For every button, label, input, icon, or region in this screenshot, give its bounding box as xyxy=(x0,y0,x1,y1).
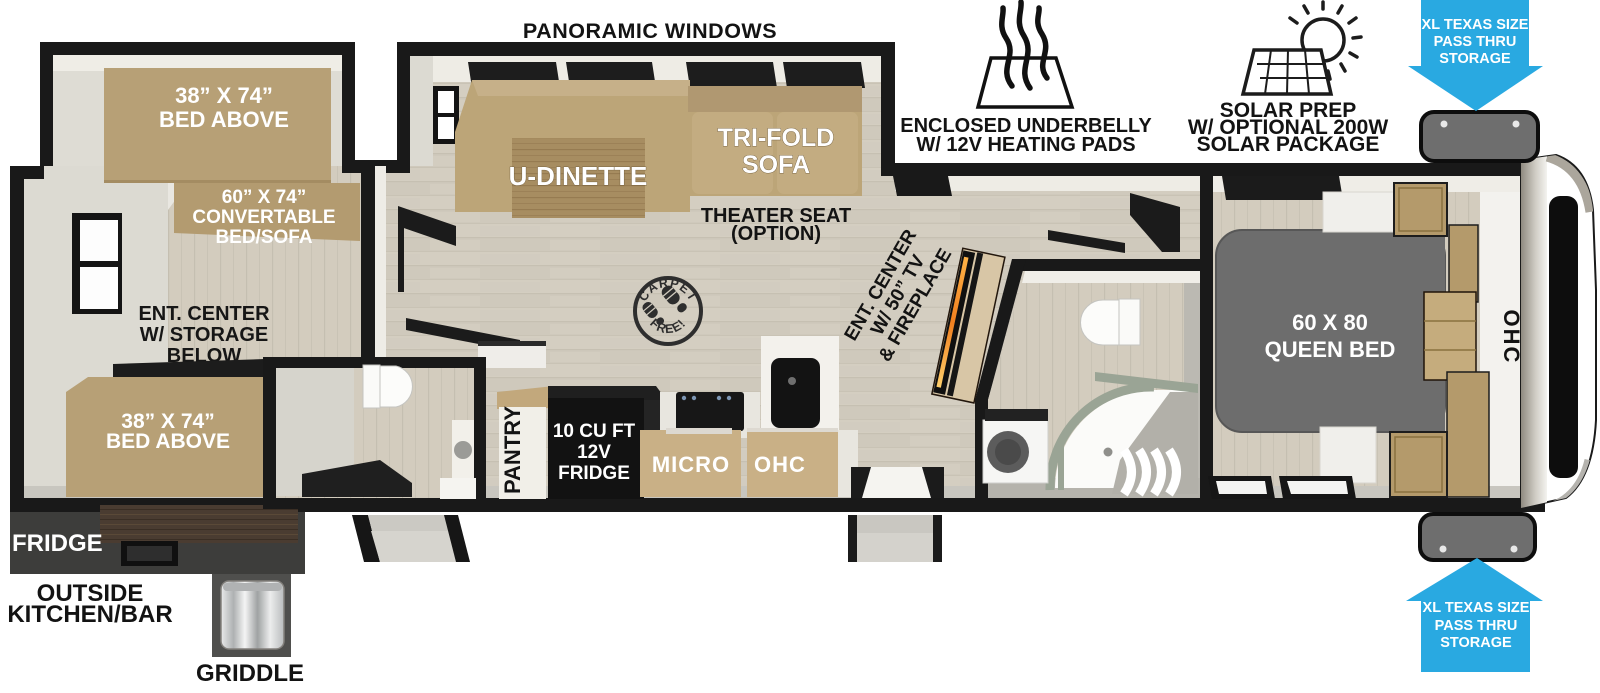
svg-text:60” X 74”: 60” X 74” xyxy=(222,187,307,208)
svg-text:KITCHEN/BAR: KITCHEN/BAR xyxy=(7,601,172,628)
svg-text:SOLAR PACKAGE: SOLAR PACKAGE xyxy=(1197,133,1380,156)
svg-text:W/ 12V HEATING PADS: W/ 12V HEATING PADS xyxy=(916,134,1135,156)
svg-text:SOFA: SOFA xyxy=(742,151,810,179)
svg-text:XL TEXAS SIZE: XL TEXAS SIZE xyxy=(1423,600,1530,616)
svg-text:QUEEN BED: QUEEN BED xyxy=(1265,337,1396,362)
svg-text:PANTRY: PANTRY xyxy=(500,406,525,494)
svg-text:12V: 12V xyxy=(577,442,611,463)
svg-text:OHC: OHC xyxy=(754,452,806,477)
svg-text:FRIDGE: FRIDGE xyxy=(558,463,630,484)
svg-text:10 CU FT: 10 CU FT xyxy=(553,421,636,442)
svg-text:MICRO: MICRO xyxy=(652,452,730,477)
svg-text:38” X 74”: 38” X 74” xyxy=(175,83,273,108)
svg-text:STORAGE: STORAGE xyxy=(1439,51,1511,67)
svg-text:CONVERTABLE: CONVERTABLE xyxy=(192,207,335,228)
svg-text:ENT. CENTER: ENT. CENTER xyxy=(138,303,270,325)
svg-text:TRI-FOLD: TRI-FOLD xyxy=(718,124,835,152)
svg-text:XL TEXAS SIZE: XL TEXAS SIZE xyxy=(1422,17,1529,33)
svg-text:BED/SOFA: BED/SOFA xyxy=(215,227,312,248)
svg-text:U-DINETTE: U-DINETTE xyxy=(509,161,648,191)
svg-text:W/ STORAGE: W/ STORAGE xyxy=(140,324,269,346)
svg-text:PASS THRU: PASS THRU xyxy=(1434,34,1517,50)
svg-text:GRIDDLE: GRIDDLE xyxy=(196,660,304,687)
svg-text:BED ABOVE: BED ABOVE xyxy=(106,430,230,453)
svg-text:60 X 80: 60 X 80 xyxy=(1292,310,1368,335)
svg-text:FRIDGE: FRIDGE xyxy=(12,530,103,557)
svg-text:STORAGE: STORAGE xyxy=(1440,635,1512,651)
svg-text:BED ABOVE: BED ABOVE xyxy=(159,107,289,132)
svg-text:PANORAMIC WINDOWS: PANORAMIC WINDOWS xyxy=(523,19,777,43)
svg-text:(OPTION): (OPTION) xyxy=(731,223,821,245)
svg-text:PASS THRU: PASS THRU xyxy=(1435,618,1518,634)
